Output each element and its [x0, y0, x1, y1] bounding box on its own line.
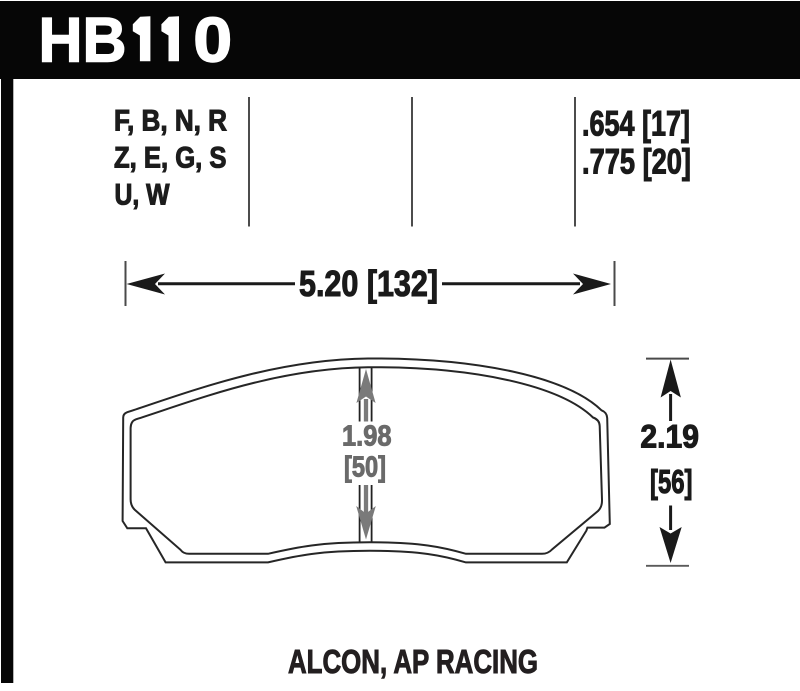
svg-text:HB: HB [39, 5, 127, 75]
svg-text:ALCON, AP RACING: ALCON, AP RACING [288, 643, 538, 680]
svg-text:5.20 [132]: 5.20 [132] [299, 263, 438, 304]
svg-text:[56]: [56] [650, 463, 693, 500]
svg-text:F, B, N, R: F, B, N, R [114, 105, 227, 138]
svg-text:Z, E, G, S: Z, E, G, S [114, 142, 227, 175]
svg-text:.654 [17]: .654 [17] [582, 104, 690, 143]
svg-text:[50]: [50] [344, 451, 386, 483]
svg-text:1.98: 1.98 [342, 420, 392, 452]
svg-text:2.19: 2.19 [640, 419, 699, 455]
svg-text:.775 [20]: .775 [20] [582, 143, 691, 182]
svg-text:U, W: U, W [115, 178, 171, 211]
svg-text:0: 0 [193, 5, 232, 75]
